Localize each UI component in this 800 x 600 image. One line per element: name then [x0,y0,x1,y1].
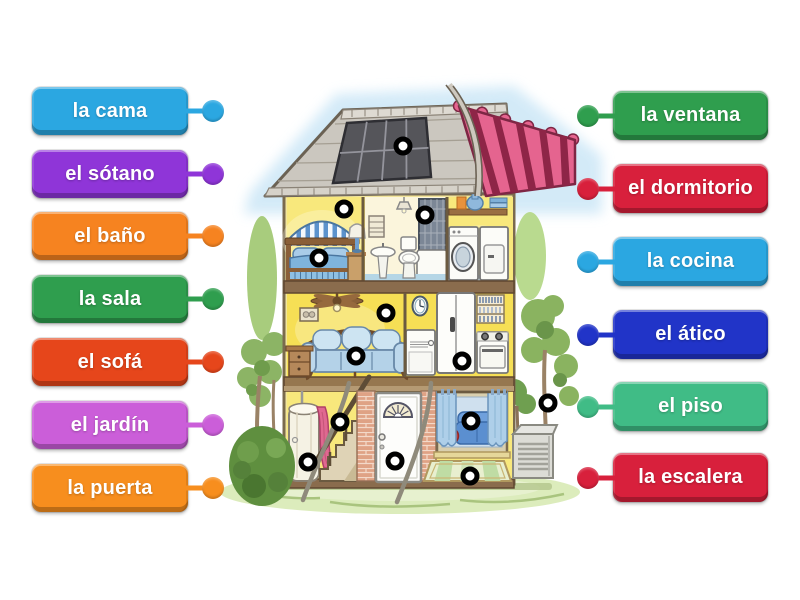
label-el-jardin[interactable]: el jardín [32,401,188,449]
bathtub [417,250,447,278]
connector-dot [202,477,224,499]
foreground-bush [229,426,295,506]
label-bubble[interactable]: el ático [613,310,768,359]
brick-wall [421,391,436,481]
ground-floor [289,377,511,502]
label-la-escalera[interactable]: la escalera [613,453,768,502]
towels [490,198,507,203]
kitchen-shelves [477,295,504,323]
connector-dot [202,163,224,185]
label-bubble[interactable]: el baño [32,212,188,260]
curtain [437,392,456,446]
house [262,85,579,502]
marker-stairs[interactable] [331,413,350,432]
label-text: la cama [73,100,148,123]
marker-water-heater[interactable] [299,453,318,472]
bedside-lamp [349,224,365,238]
label-text: la escalera [638,466,743,489]
label-text: el ático [655,323,726,346]
label-text: la cocina [647,250,734,273]
marker-bedroom[interactable] [335,200,354,219]
label-text: el piso [658,395,723,418]
toilet-bowl [399,251,419,265]
label-bubble[interactable]: el jardín [32,401,188,449]
connector-dot [577,324,599,346]
laundry-shelf [449,209,507,215]
detergent-box [457,197,466,209]
jug [467,196,483,210]
activity-stage: la camael sótanoel bañola salael sofáel … [0,0,800,600]
connector-dot [202,100,224,122]
marker-door[interactable] [386,452,405,471]
solar-panel [333,118,431,183]
label-text: el dormitorio [628,177,753,200]
label-bubble[interactable]: la ventana [613,91,768,140]
bedroom [285,203,366,282]
label-text: la puerta [67,477,152,500]
toilet-tank [401,237,416,250]
label-bubble[interactable]: la cocina [613,237,768,286]
ceiling-lamp [397,202,411,209]
dishwasher [406,330,435,375]
nightstand [346,252,366,256]
label-bubble[interactable]: el dormitorio [613,164,768,213]
connector-dot [577,467,599,489]
wall-clock [413,297,428,316]
door-knob [379,434,385,440]
bathroom [365,197,447,281]
sky-halo [244,86,602,214]
marker-kitchen[interactable] [453,352,472,371]
label-el-bano[interactable]: el baño [32,212,188,260]
label-text: el baño [74,225,145,248]
label-bubble[interactable]: la puerta [32,464,188,512]
house-body [284,194,514,484]
side-table [286,346,313,376]
label-text: el jardín [71,414,150,437]
label-el-piso[interactable]: el piso [613,382,768,431]
laundry-room [447,193,508,281]
stove [477,332,508,373]
marker-window[interactable] [462,412,481,431]
house-base-shadow [262,483,552,490]
wall-art [300,308,318,321]
label-el-sofa[interactable]: el sofá [32,338,188,386]
connector-dot [577,105,599,127]
marker-sofa[interactable] [347,347,366,366]
connector-dot [202,351,224,373]
connector-dot [577,396,599,418]
brick-wall [357,391,375,481]
label-el-atico[interactable]: el ático [613,310,768,359]
wall-cabinet [369,216,384,237]
label-text: el sofá [78,351,143,374]
vine-swoosh [397,383,431,502]
marker-living-room[interactable] [377,304,396,323]
label-el-sotano[interactable]: el sótano [32,150,188,198]
label-bubble[interactable]: la sala [32,275,188,323]
label-la-cocina[interactable]: la cocina [613,237,768,286]
label-bubble[interactable]: la cama [32,87,188,135]
dryer [480,227,508,280]
label-text: el sótano [65,163,155,186]
label-text: la sala [79,288,142,311]
label-bubble[interactable]: el sótano [32,150,188,198]
curtain [488,392,507,446]
label-la-puerta[interactable]: la puerta [32,464,188,512]
marker-garden[interactable] [539,394,558,413]
vine-swoosh [303,383,349,500]
label-la-ventana[interactable]: la ventana [613,91,768,140]
ceiling-fan [311,291,363,311]
sink [371,247,395,257]
label-la-cama[interactable]: la cama [32,87,188,135]
connector-dot [202,414,224,436]
pink-curtain [317,407,333,468]
pink-roof [454,101,579,197]
marker-bathroom[interactable] [416,206,435,225]
marker-bed[interactable] [310,249,329,268]
ac-unit [513,425,557,478]
label-text: la ventana [641,104,741,127]
roof [265,85,579,196]
label-bubble[interactable]: el sofá [32,338,188,386]
label-bubble[interactable]: el piso [613,382,768,431]
label-bubble[interactable]: la escalera [613,453,768,502]
washer [449,227,478,280]
label-el-dormitorio[interactable]: el dormitorio [613,164,768,213]
label-la-sala[interactable]: la sala [32,275,188,323]
marker-attic-roof[interactable] [394,137,413,156]
shingle-roof [265,104,514,196]
connector-dot [202,288,224,310]
background-trees [237,212,579,470]
marker-rug-floor[interactable] [461,467,480,486]
connector-dot [577,178,599,200]
red-ball [444,429,459,444]
connector-dot [577,251,599,273]
connector-dot [202,225,224,247]
